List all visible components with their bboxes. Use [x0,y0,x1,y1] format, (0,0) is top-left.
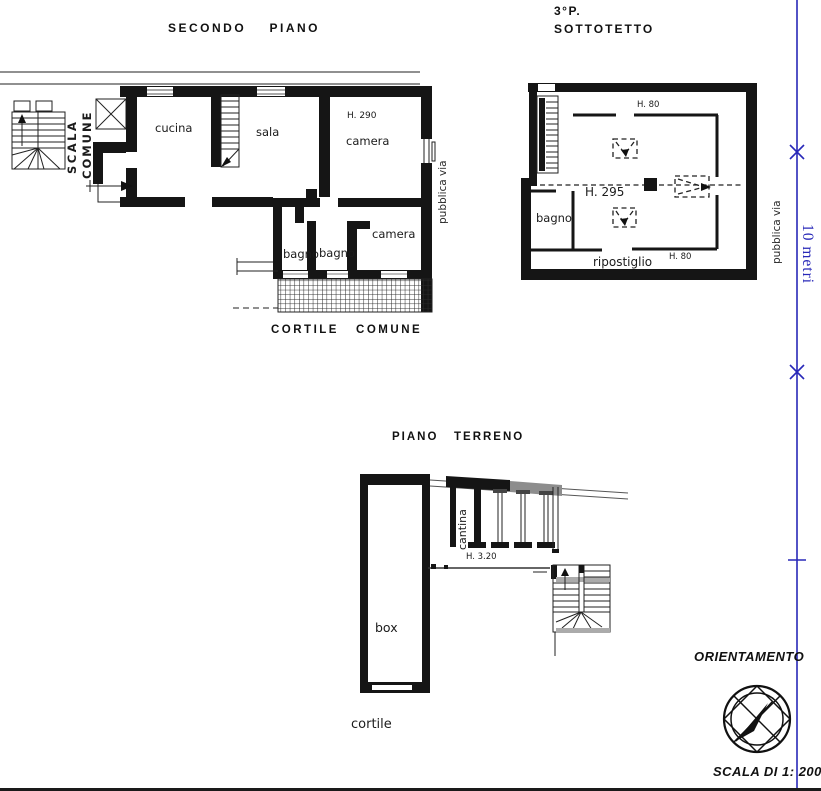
room-label-sala: sala [256,126,279,139]
external-staircase [12,101,65,169]
ground-staircase [551,565,610,656]
title-sottotetto: SOTTOTETTO [554,23,654,36]
room-label-cantina: cantina [457,492,469,550]
room-label-camera-bottom: camera [372,228,415,241]
room-label-camera-top: camera [346,135,389,148]
internal-staircase [221,95,239,167]
height-label-h80-top: H. 80 [637,101,659,110]
label-pubblica-via-floor2: pubblica via [438,158,450,224]
room-label-bagno-right: bagno [319,247,355,260]
title-orientamento: ORIENTAMENTO [694,650,804,664]
porch-piers [491,489,555,548]
plan-piano-terreno [360,474,628,693]
height-label-h295: H. 295 [585,186,624,199]
label-pubblica-via-attic: pubblica via [772,196,784,264]
plan-secondo-piano [0,72,435,312]
skylight-icon [613,208,636,227]
compass-icon [724,686,790,752]
room-label-cucina: cucina [155,122,192,135]
floorplan-drawing [0,0,821,791]
plan-sottotetto [521,83,757,280]
measure-line [788,0,806,791]
room-label-bagno-left: bagno [283,248,319,261]
room-label-ripostiglio: ripostiglio [593,256,652,269]
title-sottotetto-floor: 3°P. [554,5,581,18]
room-label-box: box [375,621,398,635]
room-label-bagno-attic: bagno [536,212,572,225]
attic-staircase [537,96,558,173]
floorplan-page: SECONDO PIANO 3°P. SOTTOTETTO CORTILE CO… [0,0,821,791]
label-scala-comune-2: COMUNE [81,103,94,179]
title-cortile-comune: CORTILE COMUNE [271,324,422,337]
skylight-icon [613,139,637,158]
height-label-h320: H. 3.20 [466,553,497,562]
measure-label-10-metri: 10 metri [799,224,816,296]
area-label-cortile: cortile [351,718,392,732]
scale-note: SCALA DI 1: 200 [713,765,821,779]
label-scala-comune-1: SCALA [66,112,79,174]
title-piano-terreno: PIANO TERRENO [392,431,524,444]
title-secondo-piano: SECONDO PIANO [168,22,320,35]
height-label-h80-bottom: H. 80 [669,253,691,262]
height-label-h290: H. 290 [347,112,377,122]
